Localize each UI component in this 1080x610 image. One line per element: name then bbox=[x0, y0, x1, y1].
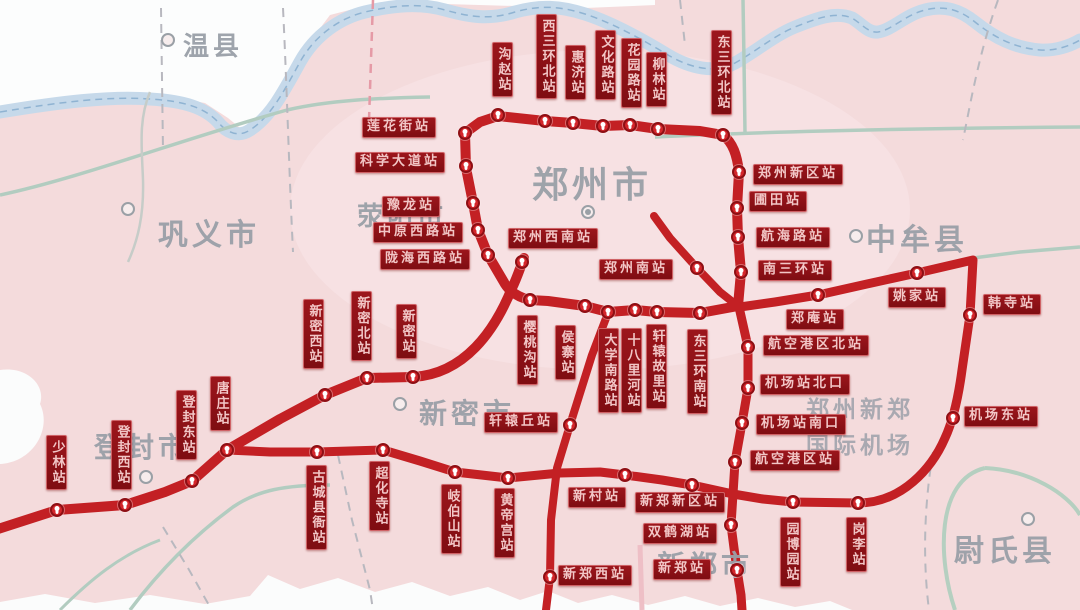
station-marker bbox=[724, 518, 738, 532]
station-marker bbox=[491, 108, 505, 122]
station-marker bbox=[543, 570, 557, 584]
station-label: 航空港区北站 bbox=[763, 335, 869, 356]
station-marker bbox=[563, 418, 577, 432]
station-label: 登封东站 bbox=[176, 390, 197, 460]
station-label: 惠济站 bbox=[565, 45, 586, 100]
station-marker bbox=[538, 114, 552, 128]
station-label: 新密西站 bbox=[303, 299, 324, 369]
city-label: 温县 bbox=[183, 26, 243, 63]
station-marker bbox=[448, 465, 462, 479]
station-marker bbox=[360, 371, 374, 385]
station-label: 南三环站 bbox=[758, 260, 832, 281]
station-label: 轩辕丘站 bbox=[484, 412, 558, 433]
station-label: 科学大道站 bbox=[355, 152, 445, 173]
station-marker bbox=[185, 474, 199, 488]
station-label: 侯寨站 bbox=[555, 325, 576, 380]
station-marker bbox=[650, 305, 664, 319]
station-marker bbox=[693, 306, 707, 320]
city-dot bbox=[849, 229, 863, 243]
city-dot bbox=[139, 470, 153, 484]
city-label: 巩义市 bbox=[158, 210, 260, 254]
station-label: 新郑新区站 bbox=[635, 492, 725, 513]
city-dot bbox=[161, 33, 175, 47]
city-dot bbox=[581, 205, 595, 219]
station-marker bbox=[623, 118, 637, 132]
labels-layer: 温县巩义市荥阳市郑州市中牟县新密市登封市新郑市尉氏县郑州新郑国际机场✈沟赵站西三… bbox=[0, 0, 1080, 610]
station-marker bbox=[730, 563, 744, 577]
station-marker bbox=[501, 471, 515, 485]
station-marker bbox=[685, 478, 699, 492]
station-label: 花园路站 bbox=[621, 38, 642, 108]
station-marker bbox=[318, 388, 332, 402]
station-marker bbox=[466, 196, 480, 210]
station-label: 机场站北口 bbox=[760, 374, 850, 395]
station-marker bbox=[728, 455, 742, 469]
station-marker bbox=[481, 248, 495, 262]
station-marker bbox=[851, 496, 865, 510]
station-label: 沟赵站 bbox=[492, 42, 513, 97]
station-label: 柳林站 bbox=[646, 52, 667, 107]
station-marker bbox=[731, 230, 745, 244]
station-label: 登封西站 bbox=[111, 420, 132, 490]
station-label: 岐伯山站 bbox=[441, 484, 462, 554]
station-marker bbox=[406, 370, 420, 384]
station-label: 园博园站 bbox=[780, 517, 801, 587]
station-marker bbox=[515, 255, 529, 269]
station-label: 东三环南站 bbox=[687, 329, 708, 414]
station-label: 新郑站 bbox=[653, 559, 711, 580]
station-marker bbox=[459, 159, 473, 173]
station-label: 少林站 bbox=[46, 435, 67, 490]
station-label: 轩辕故里站 bbox=[646, 324, 667, 409]
station-label: 双鹤湖站 bbox=[643, 523, 717, 544]
city-label: 尉氏县 bbox=[954, 526, 1056, 570]
station-label: 韩寺站 bbox=[983, 294, 1041, 315]
station-label: 航空港区站 bbox=[750, 450, 840, 471]
station-label: 黄帝宫站 bbox=[494, 488, 515, 558]
station-marker bbox=[578, 299, 592, 313]
station-marker bbox=[963, 308, 977, 322]
station-label: 中原西路站 bbox=[373, 222, 463, 243]
station-label: 姚家站 bbox=[888, 287, 946, 308]
station-label: 郑州西南站 bbox=[508, 228, 598, 249]
station-marker bbox=[741, 381, 755, 395]
station-marker bbox=[220, 443, 234, 457]
station-marker bbox=[458, 126, 472, 140]
station-label: 郑州南站 bbox=[599, 259, 673, 280]
station-marker bbox=[910, 266, 924, 280]
city-dot bbox=[1021, 512, 1035, 526]
station-label: 岗李站 bbox=[846, 517, 867, 572]
station-marker bbox=[471, 223, 485, 237]
station-marker bbox=[735, 416, 749, 430]
station-label: 郑庵站 bbox=[786, 309, 844, 330]
station-marker bbox=[732, 165, 746, 179]
station-label: 莲花街站 bbox=[362, 117, 436, 138]
station-marker bbox=[596, 119, 610, 133]
station-label: 文化路站 bbox=[595, 30, 616, 100]
station-marker bbox=[741, 340, 755, 354]
station-marker bbox=[946, 411, 960, 425]
station-marker bbox=[811, 288, 825, 302]
station-marker bbox=[618, 468, 632, 482]
station-marker bbox=[690, 261, 704, 275]
station-label: 机场站南口 bbox=[756, 414, 846, 435]
station-label: 陇海西路站 bbox=[380, 249, 470, 270]
station-label: 新郑西站 bbox=[558, 565, 632, 586]
station-label: 新村站 bbox=[568, 487, 626, 508]
station-marker bbox=[118, 498, 132, 512]
station-marker bbox=[566, 116, 580, 130]
station-label: 新密北站 bbox=[351, 291, 372, 361]
station-label: 十八里河站 bbox=[621, 328, 642, 413]
station-label: 东三环北站 bbox=[711, 30, 732, 115]
station-label: 超化寺站 bbox=[369, 461, 390, 531]
station-marker bbox=[50, 503, 64, 517]
station-label: 西三环北站 bbox=[536, 14, 557, 99]
station-marker bbox=[786, 495, 800, 509]
station-label: 机场东站 bbox=[964, 406, 1038, 427]
station-marker bbox=[730, 201, 744, 215]
city-dot bbox=[393, 397, 407, 411]
station-marker bbox=[376, 443, 390, 457]
station-label: 郑州新区站 bbox=[753, 164, 843, 185]
station-marker bbox=[601, 305, 615, 319]
station-label: 唐庄站 bbox=[210, 376, 231, 431]
station-label: 豫龙站 bbox=[382, 196, 440, 217]
station-marker bbox=[716, 128, 730, 142]
city-label: 郑州市 bbox=[532, 156, 652, 208]
station-label: 樱桃沟站 bbox=[517, 315, 538, 385]
map-canvas: 温县巩义市荥阳市郑州市中牟县新密市登封市新郑市尉氏县郑州新郑国际机场✈沟赵站西三… bbox=[0, 0, 1080, 610]
station-marker bbox=[628, 303, 642, 317]
station-label: 圃田站 bbox=[749, 191, 807, 212]
station-label: 航海路站 bbox=[756, 227, 830, 248]
station-marker bbox=[523, 293, 537, 307]
city-label: 中牟县 bbox=[866, 215, 968, 259]
station-marker bbox=[651, 122, 665, 136]
station-label: 新密站 bbox=[396, 304, 417, 359]
station-marker bbox=[734, 265, 748, 279]
station-marker bbox=[310, 445, 324, 459]
station-label: 古城县衙站 bbox=[306, 465, 327, 550]
station-label: 大学南路站 bbox=[598, 328, 619, 413]
city-dot bbox=[121, 202, 135, 216]
